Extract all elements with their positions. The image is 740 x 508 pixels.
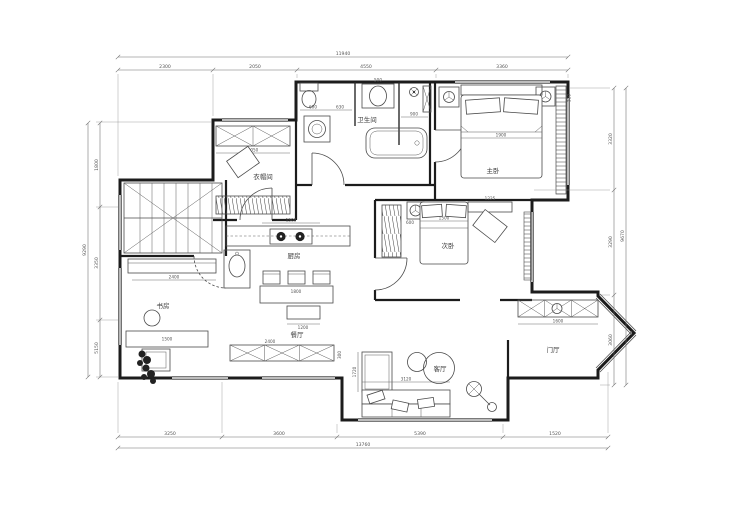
inner-dim-kitchen: 1500 (286, 218, 297, 223)
dim-top-seg-1: 2050 (249, 64, 261, 70)
inner-dim-bed2: 1500 (439, 216, 450, 221)
radiator (524, 212, 531, 280)
dimension-right: 3320 3290 3060 9670 (534, 86, 628, 387)
dim-top-seg-3: 3360 (496, 64, 508, 70)
floor-lamp-icon (467, 382, 497, 412)
dim-top-total: 11940 (336, 51, 351, 57)
desk (473, 210, 507, 243)
dim-bottom-seg-0: 3250 (164, 431, 176, 437)
inner-dim-study-cabinet: 2400 (169, 275, 180, 280)
inner-dim-lamp: 510 (567, 94, 572, 102)
inner-dim-sideboard-depth: 300 (337, 351, 342, 359)
dim-right-seg-0: 3320 (608, 133, 614, 145)
dim-top-seg-0: 2300 (159, 64, 171, 70)
pillow (504, 98, 539, 114)
inner-dim-table: 1800 (291, 289, 302, 294)
dim-left-seg-0: 1800 (94, 159, 100, 171)
room-label-dining: 餐厅 (291, 330, 305, 339)
room-label-bathroom: 卫生间 (357, 115, 377, 124)
pillow (466, 98, 501, 114)
shower-icon (410, 88, 419, 97)
lamp-icon (444, 92, 455, 103)
inner-dim-chaise: 1720 (352, 366, 357, 377)
living-furniture: 3120 1720 客厅 (352, 352, 497, 417)
washbasin-icon (362, 84, 394, 108)
headboard (461, 85, 542, 95)
inner-dim-sideboard: 2400 (265, 339, 276, 344)
master-furniture: 510 1900 主卧 (439, 85, 572, 194)
inner-dim-sofa: 3120 (401, 377, 412, 382)
sofa-chaise (362, 352, 392, 392)
room-label-living: 客厅 (434, 364, 448, 373)
inner-dim-bench: 1200 (298, 325, 309, 330)
dining-furniture: 1800 1200 餐厅 2400 300 (230, 271, 342, 361)
sink-icon (229, 255, 245, 277)
dining-chair (263, 271, 280, 284)
room-label-cloakroom: 衣帽间 (253, 172, 273, 181)
shelf (468, 202, 512, 212)
bathtub-icon (366, 128, 427, 158)
wardrobe (382, 205, 401, 257)
inner-dim-bath-w: 900 (410, 112, 418, 117)
dim-right-total: 9670 (620, 230, 626, 242)
dining-chair (288, 271, 305, 284)
stove-icon (270, 229, 312, 244)
inner-dim-shoe-cabinet: 1600 (553, 319, 564, 324)
inner-dim-b600: 600 (309, 105, 317, 110)
cloakroom-furniture: 2050 衣帽间 (216, 126, 290, 214)
cloak-hanging-rail (216, 196, 290, 214)
inner-dim-bed2-gap: 600 (406, 220, 414, 225)
second-bedroom-furniture: 1500 600 1225 次卧 (382, 196, 531, 280)
staircase (124, 183, 222, 253)
sofa-pillow (417, 397, 434, 408)
room-label-master: 主卧 (487, 166, 501, 175)
room-label-study: 书房 (157, 301, 170, 310)
floor-plan-canvas: 2050 衣帽间 1500 厨房 1800 1200 餐厅 2400 300 (0, 0, 740, 508)
room-label-hall: 门厅 (547, 345, 561, 354)
dim-bottom-seg-2: 5390 (414, 431, 426, 437)
inner-dim-b630: 630 (336, 105, 344, 110)
dim-left-seg-2: 5150 (94, 342, 100, 354)
sink-cabinet (224, 250, 250, 288)
inner-dim-desk: 1500 (162, 337, 173, 342)
bathroom-furniture: 600 630 500 900 卫生间 (300, 78, 431, 159)
dim-left-total: 9290 (82, 244, 88, 256)
dim-bottom-total: 13760 (356, 442, 371, 448)
hall-furniture: 1600 门厅 (518, 300, 598, 354)
fan-icon (552, 304, 562, 314)
study-chair (144, 310, 160, 326)
room-label-second: 次卧 (442, 241, 456, 250)
floor-plan-svg: 2050 衣帽间 1500 厨房 1800 1200 餐厅 2400 300 (0, 0, 740, 508)
room-label-kitchen: 厨房 (288, 251, 301, 260)
dim-top-seg-2: 4550 (360, 64, 372, 70)
dim-bottom-seg-3: 1520 (549, 431, 561, 437)
washing-machine-icon (304, 116, 330, 142)
master-wardrobe (556, 86, 566, 194)
study-cabinet (128, 259, 216, 273)
kitchen-furniture: 1500 厨房 (224, 218, 350, 289)
dining-chair (313, 271, 330, 284)
fan-icon (410, 205, 421, 216)
dim-bottom-seg-1: 3600 (273, 431, 285, 437)
dim-left-seg-1: 3350 (94, 257, 100, 269)
inner-dim-basin: 500 (374, 78, 382, 83)
dim-right-seg-1: 3290 (608, 236, 614, 248)
dining-bench (287, 306, 320, 319)
inner-dim-master-bed: 1900 (496, 133, 507, 138)
dim-right-seg-2: 3060 (608, 334, 614, 346)
inner-dim-shelf: 1225 (485, 196, 496, 201)
